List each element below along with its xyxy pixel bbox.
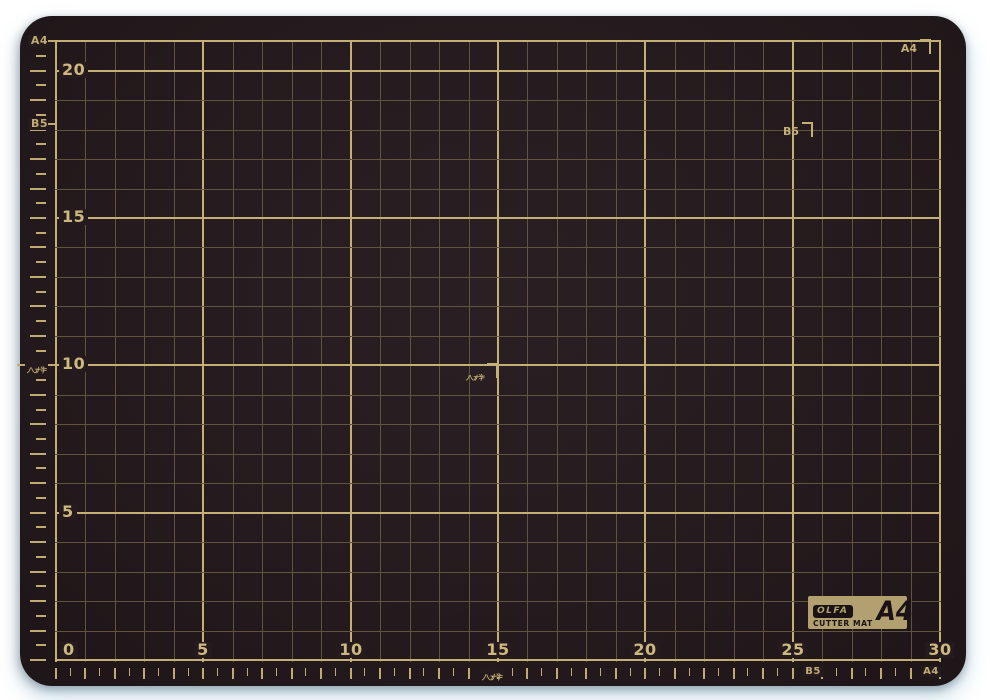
grid-line-horizontal <box>55 483 941 484</box>
bottom-ruler-tick <box>247 668 248 676</box>
grid-line-horizontal <box>55 40 941 42</box>
bottom-ruler-tick <box>70 668 71 676</box>
left-margin-label-dash <box>48 123 56 125</box>
bottom-ruler-tick <box>84 668 86 679</box>
left-ruler-tick <box>36 350 46 352</box>
bottom-margin-paper-label: B5 <box>803 666 823 677</box>
bottom-ruler-tick <box>836 668 837 676</box>
left-ruler-tick <box>36 526 46 528</box>
bottom-ruler-tick <box>394 668 395 676</box>
left-ruler-tick <box>30 335 46 337</box>
grid-line-vertical <box>527 41 528 662</box>
bottom-ruler-tick <box>895 668 896 676</box>
grid-line-horizontal <box>55 247 941 248</box>
grid-line-vertical <box>202 41 204 662</box>
bottom-ruler-tick <box>350 668 352 679</box>
left-ruler-tick <box>30 188 46 190</box>
bottom-ruler-tick <box>556 668 558 679</box>
left-ruler-tick <box>36 114 46 116</box>
grid-line-vertical <box>675 41 676 662</box>
brand-badge: OLFA CUTTER MAT A4 <box>808 596 907 629</box>
bottom-margin-hagaki-label <box>481 667 503 677</box>
grid-line-vertical <box>115 41 116 662</box>
grid-line-horizontal <box>55 277 941 278</box>
bottom-ruler-tick <box>114 668 116 679</box>
y-axis-number-label: 10 <box>59 356 88 372</box>
left-margin-paper-label: B5 <box>28 118 48 130</box>
bottom-ruler-tick <box>379 668 381 679</box>
bottom-ruler-tick <box>99 668 100 676</box>
grid-line-horizontal <box>55 512 941 514</box>
left-ruler-tick <box>36 438 46 440</box>
left-ruler-tick <box>36 291 46 293</box>
left-ruler-tick <box>30 482 46 484</box>
grid-line-vertical <box>350 41 352 662</box>
bottom-ruler-tick <box>880 668 882 679</box>
left-ruler-tick <box>36 143 46 145</box>
left-ruler-tick <box>36 615 46 617</box>
badge-size-label: A4 <box>877 596 914 629</box>
bottom-ruler-tick <box>291 668 293 679</box>
bottom-ruler-tick <box>615 668 617 679</box>
grid-line-horizontal <box>55 631 941 632</box>
left-ruler-tick <box>30 453 46 455</box>
left-ruler-tick <box>30 541 46 543</box>
left-margin-label-dash <box>48 40 56 42</box>
bottom-ruler-tick <box>792 668 794 679</box>
left-ruler-tick <box>36 379 46 381</box>
bottom-ruler-tick <box>777 668 778 676</box>
bottom-ruler-tick <box>689 668 690 676</box>
grid-line-horizontal <box>55 424 941 425</box>
bottom-ruler-tick <box>276 668 277 676</box>
bottom-ruler-tick <box>232 668 234 679</box>
grid-line-vertical <box>439 41 440 662</box>
left-ruler-tick <box>30 158 46 160</box>
bottom-ruler-tick <box>600 668 601 676</box>
left-ruler-tick <box>36 585 46 587</box>
grid-line-vertical <box>881 41 882 662</box>
bottom-margin-paper-label: A4 <box>921 666 941 677</box>
x-axis-number-label: 5 <box>194 642 212 658</box>
grid-layer: 5101520051015202530A4B5B5A4A4B5 <box>0 0 990 700</box>
grid-line-horizontal <box>55 306 941 307</box>
bottom-ruler-tick <box>409 668 411 679</box>
bottom-ruler-tick <box>453 668 454 676</box>
bottom-ruler-tick <box>335 668 336 676</box>
left-ruler-tick <box>30 659 46 661</box>
left-ruler-tick <box>36 84 46 86</box>
grid-line-vertical <box>852 41 853 662</box>
bottom-ruler-tick <box>143 668 145 679</box>
x-axis-number-label: 0 <box>60 642 78 658</box>
left-ruler-tick <box>36 467 46 469</box>
grid-line-horizontal <box>55 336 941 337</box>
bottom-ruler-tick <box>188 668 189 676</box>
grid-line-horizontal <box>55 572 941 573</box>
grid-line-vertical <box>911 41 912 662</box>
bottom-ruler-tick <box>865 668 866 676</box>
grid-line-horizontal <box>55 542 941 543</box>
grid-line-vertical <box>469 41 470 662</box>
grid-line-vertical <box>557 41 558 662</box>
grid-line-vertical <box>939 41 941 662</box>
left-ruler-tick <box>36 556 46 558</box>
bottom-ruler-tick <box>703 668 705 679</box>
grid-line-vertical <box>380 41 381 662</box>
left-ruler-tick <box>36 497 46 499</box>
bottom-ruler-tick <box>305 668 306 676</box>
grid-line-vertical <box>321 41 322 662</box>
grid-line-horizontal <box>55 395 941 396</box>
grid-line-vertical <box>55 41 57 662</box>
y-axis-number-label: 5 <box>59 504 77 520</box>
left-ruler-tick <box>30 600 46 602</box>
left-ruler-tick <box>30 217 46 219</box>
x-axis-number-label: 30 <box>925 642 954 658</box>
grid-line-vertical <box>734 41 735 662</box>
grid-line-vertical <box>616 41 617 662</box>
grid-line-horizontal <box>55 217 941 219</box>
bottom-ruler-tick <box>364 668 365 676</box>
left-ruler-tick <box>36 644 46 646</box>
badge-product-label: CUTTER MAT <box>813 619 872 629</box>
left-ruler-tick <box>36 232 46 234</box>
left-margin-hagaki-label <box>26 360 47 370</box>
grid-line-horizontal <box>55 100 941 101</box>
left-ruler-tick <box>30 70 46 72</box>
grid-line-vertical <box>763 41 764 662</box>
grid-line-horizontal <box>55 130 941 131</box>
bottom-ruler-tick <box>630 668 631 676</box>
paper-corner-bracket-vertical <box>496 363 498 378</box>
paper-corner-marker-label: B5 <box>775 126 799 138</box>
bottom-ruler-tick <box>512 668 513 676</box>
left-ruler-tick <box>30 99 46 101</box>
grid-line-horizontal <box>55 189 941 190</box>
left-ruler-tick <box>30 276 46 278</box>
y-axis-number-label: 20 <box>59 62 88 78</box>
bottom-ruler-tick <box>674 668 676 679</box>
bottom-ruler-tick <box>644 668 646 679</box>
bottom-ruler-tick <box>762 668 764 679</box>
paper-corner-bracket-vertical <box>811 122 813 137</box>
x-axis-number-label: 15 <box>483 642 512 658</box>
bottom-ruler-tick <box>718 668 719 676</box>
grid-line-vertical <box>262 41 263 662</box>
x-axis-number-label: 20 <box>630 642 659 658</box>
bottom-ruler-tick <box>571 668 572 676</box>
left-ruler-tick <box>30 512 46 514</box>
x-axis-number-label: 25 <box>778 642 807 658</box>
bottom-ruler-tick <box>747 668 748 676</box>
product-photo-scene: 5101520051015202530A4B5B5A4A4B5 OLFA CUT… <box>0 0 990 700</box>
paper-corner-bracket-vertical <box>929 39 931 54</box>
olfa-logo: OLFA <box>813 605 853 618</box>
bottom-ruler-tick <box>202 668 204 679</box>
grid-line-vertical <box>497 41 499 662</box>
left-ruler-tick <box>36 173 46 175</box>
bottom-ruler-tick <box>585 668 587 679</box>
grid-line-vertical <box>822 41 823 662</box>
bottom-ruler-tick <box>733 668 735 679</box>
paper-corner-hagaki-label <box>465 367 485 376</box>
bottom-ruler-tick <box>261 668 263 679</box>
left-ruler-tick <box>30 423 46 425</box>
bottom-ruler-tick <box>910 668 912 679</box>
bottom-ruler-tick <box>659 668 660 676</box>
grid-line-vertical <box>292 41 293 662</box>
left-ruler-tick <box>30 630 46 632</box>
grid-line-horizontal <box>55 364 941 366</box>
bottom-ruler-tick <box>320 668 322 679</box>
bottom-ruler-tick <box>423 668 424 676</box>
badge-left-column: OLFA CUTTER MAT <box>808 596 875 629</box>
grid-line-vertical <box>410 41 411 662</box>
left-ruler-tick <box>30 246 46 248</box>
bottom-ruler-tick <box>55 668 57 679</box>
left-margin-label-dash <box>48 364 56 366</box>
left-ruler-tick <box>36 409 46 411</box>
grid-line-vertical <box>586 41 587 662</box>
bottom-ruler-tick <box>526 668 528 679</box>
bottom-ruler-tick <box>468 668 470 679</box>
grid-line-horizontal <box>55 659 941 661</box>
grid-line-horizontal <box>55 454 941 455</box>
grid-line-vertical <box>704 41 705 662</box>
left-margin-paper-label: A4 <box>28 35 48 47</box>
grid-line-vertical <box>144 41 145 662</box>
left-margin-tick-dash <box>17 364 25 366</box>
grid-line-horizontal <box>55 159 941 160</box>
grid-line-vertical <box>233 41 234 662</box>
left-ruler-tick <box>30 571 46 573</box>
left-ruler-tick <box>36 320 46 322</box>
bottom-ruler-tick <box>129 668 130 676</box>
left-ruler-tick <box>30 394 46 396</box>
grid-line-vertical <box>85 41 86 662</box>
bottom-ruler-tick <box>217 668 218 676</box>
grid-line-vertical <box>174 41 175 662</box>
y-axis-number-label: 15 <box>59 209 88 225</box>
grid-line-horizontal <box>55 70 941 72</box>
left-ruler-tick <box>36 261 46 263</box>
bottom-ruler-tick <box>158 668 159 676</box>
bottom-ruler-tick <box>851 668 853 679</box>
left-ruler-tick <box>30 305 46 307</box>
paper-corner-marker-label: A4 <box>893 43 917 55</box>
bottom-ruler-tick <box>438 668 440 679</box>
left-ruler-tick <box>36 202 46 204</box>
grid-line-vertical <box>644 41 646 662</box>
bottom-ruler-tick <box>173 668 175 679</box>
x-axis-number-label: 10 <box>336 642 365 658</box>
bottom-ruler-tick <box>541 668 542 676</box>
left-ruler-tick <box>36 55 46 57</box>
